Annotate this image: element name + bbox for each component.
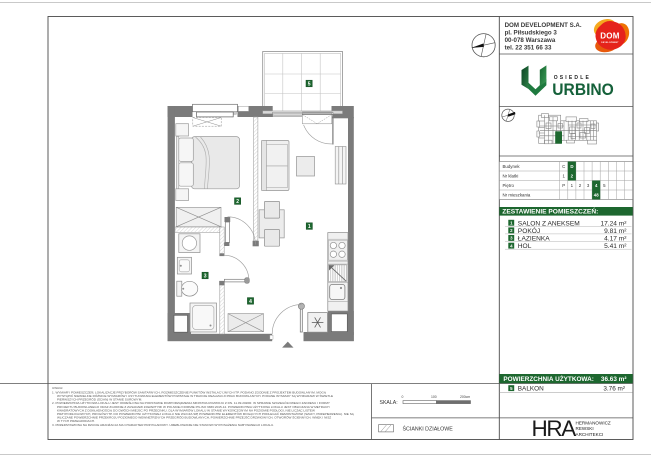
svg-text:Piętro: Piętro (503, 183, 515, 188)
svg-text:WLICZANE POWIERZCHNIE PRZEKROJ: WLICZANE POWIERZCHNIE PRZEKROJU POZIOMEG… (57, 415, 331, 420)
svg-text:1: 1 (308, 224, 311, 230)
svg-text:2: 2 (236, 199, 239, 205)
svg-text:0: 0 (402, 395, 404, 399)
svg-text:DOM DEVELOPMENT S.A.: DOM DEVELOPMENT S.A. (505, 22, 582, 29)
svg-text:P: P (562, 183, 565, 188)
svg-text:HOL: HOL (518, 243, 532, 250)
svg-text:48: 48 (594, 193, 599, 198)
svg-text:3: 3 (204, 274, 207, 280)
svg-text:DEVELOPMENT: DEVELOPMENT (601, 42, 619, 44)
svg-text:ŁAZIENKA: ŁAZIENKA (518, 236, 550, 243)
svg-text:C: C (562, 164, 565, 169)
svg-text:SALON Z ANEKSEM: SALON Z ANEKSEM (518, 220, 580, 227)
svg-text:100: 100 (431, 395, 437, 399)
svg-text:SKALA:: SKALA: (380, 400, 398, 406)
svg-text:OSIEDLE: OSIEDLE (554, 75, 591, 81)
svg-text:17.24 m²: 17.24 m² (600, 220, 627, 227)
svg-text:5: 5 (308, 82, 311, 88)
svg-text:HRA: HRA (532, 416, 577, 441)
svg-text:POKÓJ: POKÓJ (518, 226, 540, 235)
svg-text:BALKON: BALKON (518, 386, 544, 393)
svg-text:REWSKI: REWSKI (576, 426, 594, 431)
svg-text:UWAGI:: UWAGI: (52, 386, 63, 390)
svg-text:4: 4 (249, 299, 252, 305)
svg-text:URBINO: URBINO (552, 81, 614, 99)
svg-text:pl. Piłsudskiego 3: pl. Piłsudskiego 3 (505, 30, 558, 37)
svg-text:DOM: DOM (600, 31, 620, 40)
svg-text:D: D (570, 164, 573, 169)
svg-text:00-078 Warszawa: 00-078 Warszawa (505, 37, 556, 44)
svg-text:Budynek: Budynek (503, 164, 521, 169)
svg-text:ZESTAWIENIE POMIESZCZEŃ:: ZESTAWIENIE POMIESZCZEŃ: (502, 207, 598, 216)
svg-text:9.81 m²: 9.81 m² (604, 228, 627, 235)
svg-text:200cm: 200cm (460, 395, 470, 399)
svg-text:36.63 m²: 36.63 m² (601, 376, 627, 383)
svg-text:4.17 m²: 4.17 m² (604, 236, 627, 243)
svg-text:ŚCIANKI DZIAŁOWE: ŚCIANKI DZIAŁOWE (403, 425, 454, 433)
svg-text:Nr mieszkania: Nr mieszkania (503, 193, 531, 198)
svg-text:POWIERZCHNIA UŻYTKOWA:: POWIERZCHNIA UŻYTKOWA: (503, 374, 593, 383)
svg-text:tel. 22 351 66 33: tel. 22 351 66 33 (505, 44, 552, 51)
svg-text:ARCHITEKCI: ARCHITEKCI (576, 432, 604, 437)
svg-text:3.76 m²: 3.76 m² (603, 386, 625, 393)
svg-text:5.41 m²: 5.41 m² (604, 243, 627, 250)
svg-text:Nr klatki: Nr klatki (503, 174, 519, 179)
svg-text:HERMANOWICZ: HERMANOWICZ (576, 420, 611, 425)
svg-text:3. PRZEDSTAWIONA NA RZUCIE A: 3. PRZEDSTAWIONA NA RZUCIE ARANŻACJA MA … (52, 422, 274, 427)
